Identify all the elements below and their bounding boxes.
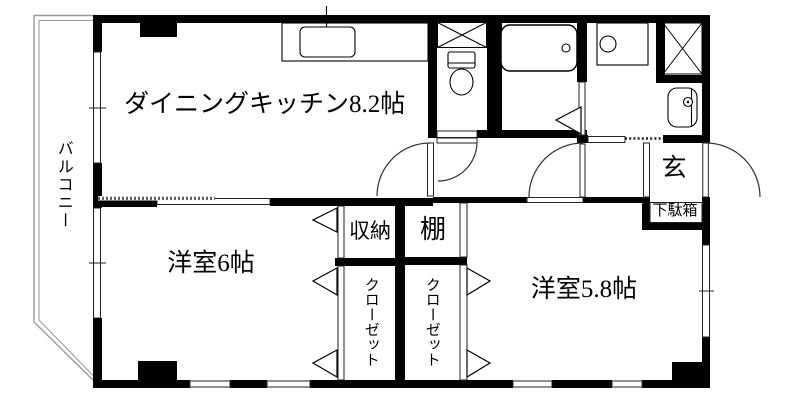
bath-folding-door-icon — [556, 107, 581, 134]
bathtub-icon — [501, 25, 577, 71]
dk-door-leaf — [428, 143, 434, 196]
toilet-door-leaf — [437, 138, 477, 143]
dk-door-arc — [377, 143, 430, 196]
toilet-door-arc — [438, 142, 477, 181]
room-label-western-room-6: 洋室6帖 — [148, 251, 274, 277]
toilet-fixture-icon — [448, 52, 475, 95]
bedroom2-door-leaf — [580, 144, 585, 197]
label-storage: 収納 — [341, 220, 399, 242]
kitchen-sink-icon — [300, 27, 355, 57]
wash-basin-icon — [668, 88, 697, 127]
washing-machine-pan-icon — [597, 23, 648, 65]
label-closet-left: クローゼット — [362, 266, 378, 378]
floorplan: バルコニー ダイニングキッチン8.2帖 洋室6帖 洋室5.8帖 収納 棚 クロー… — [0, 0, 800, 406]
label-shoe-cabinet: 下駄箱 — [645, 204, 705, 220]
toilet-shelf-icon — [438, 23, 487, 48]
entry-door-arc — [706, 143, 760, 197]
sliding-partition — [98, 196, 215, 201]
entry-door-leaf — [703, 143, 709, 197]
label-closet-right: クローゼット — [423, 266, 439, 378]
entrance-storage-icon — [663, 23, 702, 74]
room-label-dining-kitchen: ダイニングキッチン8.2帖 — [124, 92, 392, 118]
room-label-western-room-5-8: 洋室5.8帖 — [518, 277, 650, 303]
kitchen-counter — [282, 6, 428, 61]
room-label-balcony: バルコニー — [54, 134, 71, 236]
openings — [157, 131, 650, 205]
bedroom2-door-arc — [529, 143, 583, 197]
label-shelf: 棚 — [403, 216, 463, 243]
label-entrance: 玄 — [651, 156, 697, 182]
